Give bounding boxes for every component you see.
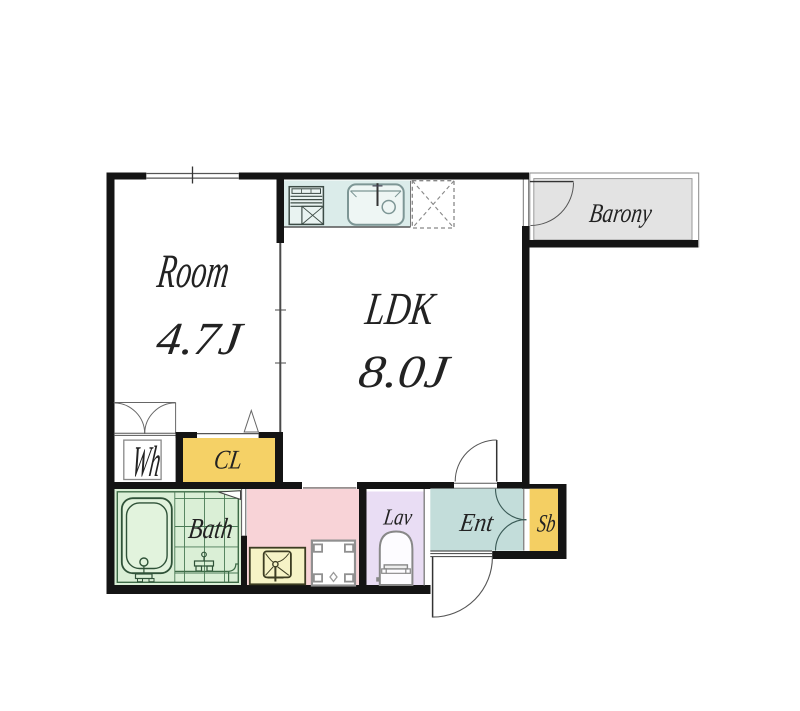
svg-text:Lav: Lav: [381, 504, 414, 530]
svg-text:Sb: Sb: [536, 511, 558, 538]
svg-text:LDK: LDK: [362, 283, 440, 334]
svg-text:Room: Room: [154, 245, 233, 298]
svg-text:8.0J: 8.0J: [356, 346, 455, 397]
svg-text:CL: CL: [212, 445, 244, 475]
svg-text:Ent: Ent: [457, 508, 496, 537]
svg-text:4.7J: 4.7J: [154, 313, 248, 364]
svg-text:Barony: Barony: [588, 198, 655, 228]
svg-text:Bath: Bath: [187, 513, 235, 545]
